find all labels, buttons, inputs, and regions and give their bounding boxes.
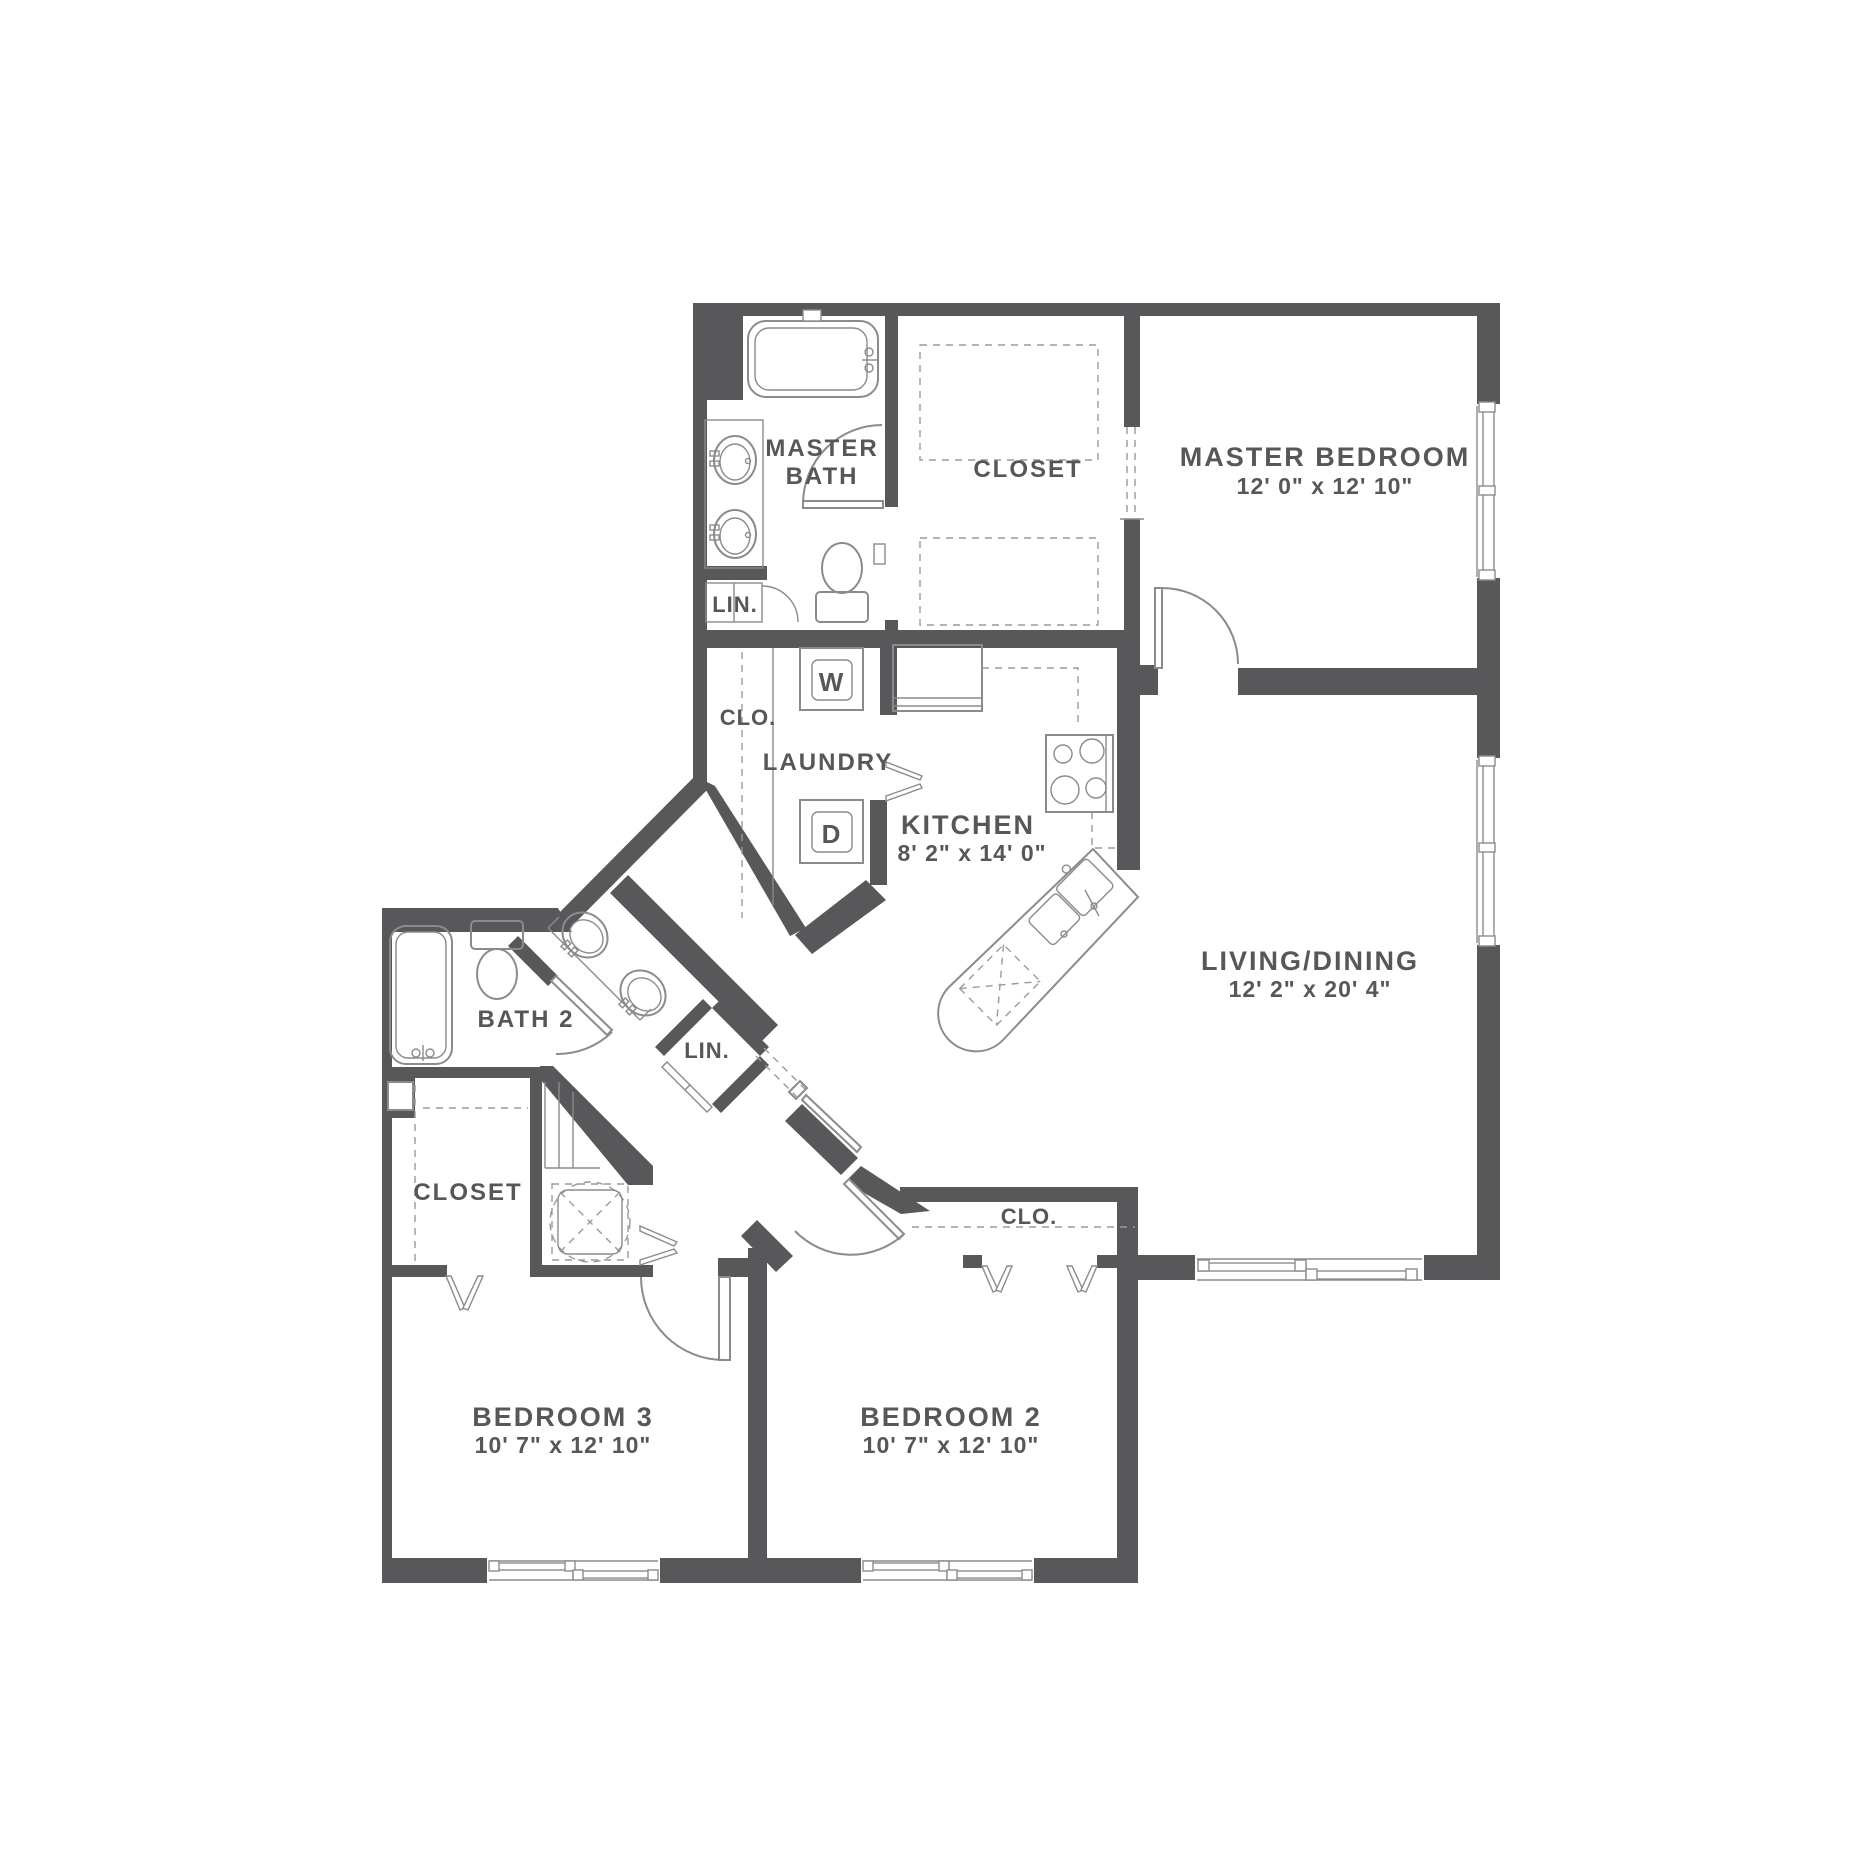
- closet-rod-dashes-hall: [415, 1085, 528, 1262]
- window-bedroom2: [861, 1556, 1034, 1583]
- label-living-dining-dims: 12' 2" x 20' 4": [1229, 976, 1392, 1002]
- label-bed2-closet: CLO.: [1001, 1204, 1058, 1229]
- wall-living-bottom-right: [1424, 1255, 1500, 1280]
- label-hall-closet: CLOSET: [413, 1179, 522, 1206]
- wall-bed3-door-jamb: [718, 1258, 748, 1277]
- floor-plan-svg: MASTER BATH CLOSET MASTER BEDROOM 12' 0"…: [0, 0, 1875, 1875]
- bifold-bed2-closet-left: [982, 1266, 1012, 1292]
- label-living-dining: LIVING/DINING: [1201, 946, 1419, 976]
- bifold-hall-closet: [446, 1276, 483, 1310]
- wall-laundry-lower: [870, 800, 887, 885]
- wall-diag-laundry-se: [795, 880, 886, 954]
- wall-bed2-bed3-divider: [748, 1248, 767, 1560]
- label-dryer: D: [822, 819, 841, 849]
- wall-mbr-door-jamb: [1140, 665, 1158, 695]
- wall-hallcloset-right: [530, 1075, 542, 1277]
- wall-bed2-closet-stub: [963, 1255, 982, 1268]
- label-bath2: BATH 2: [478, 1006, 575, 1033]
- wall-closet-bedroom-divider-upper: [1124, 316, 1140, 427]
- bifold-mechanical: [640, 1226, 677, 1265]
- label-washer: W: [819, 667, 844, 697]
- floor-plan-page: MASTER BATH CLOSET MASTER BEDROOM 12' 0"…: [0, 0, 1875, 1875]
- pocket-door-master-closet: [1120, 427, 1144, 519]
- wall-laundry-left: [693, 648, 707, 782]
- bifold-bed2-closet-right: [1067, 1266, 1097, 1292]
- label-linen-hall: LIN.: [684, 1038, 730, 1063]
- kitchen-island: [938, 849, 1138, 1051]
- door-master-bedroom: [1155, 588, 1238, 668]
- stove-icon: [1046, 735, 1113, 812]
- label-linen-master: LIN.: [712, 592, 758, 617]
- wall-closet-bedroom-divider-lower: [1124, 519, 1140, 648]
- wall-bed2-right: [1117, 1202, 1138, 1583]
- refrigerator-icon: [893, 645, 982, 711]
- door-bedroom3: [641, 1277, 730, 1360]
- label-kitchen: KITCHEN: [901, 810, 1035, 840]
- label-bedroom3-dims: 10' 7" x 12' 10": [475, 1432, 652, 1458]
- label-laundry-closet: CLO.: [720, 705, 777, 730]
- wall-laundry-kitchen-stub: [880, 648, 897, 715]
- label-bedroom2: BEDROOM 2: [860, 1402, 1042, 1432]
- toilet-bath2-icon: [471, 921, 523, 999]
- door-linen-hall-panels: [662, 1062, 712, 1112]
- label-bedroom2-dims: 10' 7" x 12' 10": [863, 1432, 1040, 1458]
- label-bedroom3: BEDROOM 3: [472, 1402, 654, 1432]
- wall-diag-bath2-door-stub: [508, 936, 558, 986]
- wall-right-mid: [1477, 577, 1500, 760]
- closet-shelf-dashes-master: [920, 345, 1098, 625]
- wall-right-upper: [1477, 303, 1500, 406]
- wall-diag-bath2-mech: [540, 1066, 653, 1185]
- wall-diag-laundry-sw: [699, 778, 806, 936]
- wall-hallcloset-front: [382, 1265, 447, 1277]
- label-master-bath-1: MASTER: [765, 435, 878, 462]
- label-kitchen-dims: 8' 2" x 14' 0": [897, 840, 1046, 866]
- wall-living-bottom-left: [1138, 1255, 1195, 1280]
- window-living: [1474, 756, 1501, 946]
- wall-bed2-closet-back: [900, 1187, 1138, 1202]
- water-heater-icon: [550, 1182, 630, 1262]
- label-laundry: LAUNDRY: [763, 749, 893, 776]
- label-master-bath-2: BATH: [786, 463, 859, 490]
- wall-right-lower: [1477, 943, 1500, 1255]
- wall-lin-hall-se: [712, 1056, 769, 1113]
- window-bedroom3: [487, 1556, 660, 1583]
- vanity-master-icon: [705, 420, 763, 568]
- label-master-bedroom: MASTER BEDROOM: [1180, 442, 1471, 472]
- label-master-closet: CLOSET: [973, 456, 1082, 483]
- bathtub-master-icon: [748, 310, 878, 397]
- label-master-bedroom-dims: 12' 0" x 12' 10": [1237, 473, 1414, 499]
- wall-bath-closet-divider-upper: [885, 303, 898, 507]
- bathtub-bath2-icon: [390, 926, 452, 1064]
- toilet-master-icon: [816, 543, 885, 622]
- labels: MASTER BATH CLOSET MASTER BEDROOM 12' 0"…: [413, 435, 1470, 1458]
- wall-mech-front: [542, 1265, 653, 1277]
- wall-kitchen-living: [1117, 648, 1140, 870]
- window-master-bedroom: [1474, 402, 1501, 580]
- sliding-door-living: [1195, 1253, 1424, 1282]
- wall-bed2-closet-jamb: [1097, 1255, 1117, 1268]
- wall-tub-chase: [693, 303, 743, 400]
- wall-notch-window: [388, 1082, 413, 1110]
- wall-mbr-bottom: [1238, 668, 1477, 695]
